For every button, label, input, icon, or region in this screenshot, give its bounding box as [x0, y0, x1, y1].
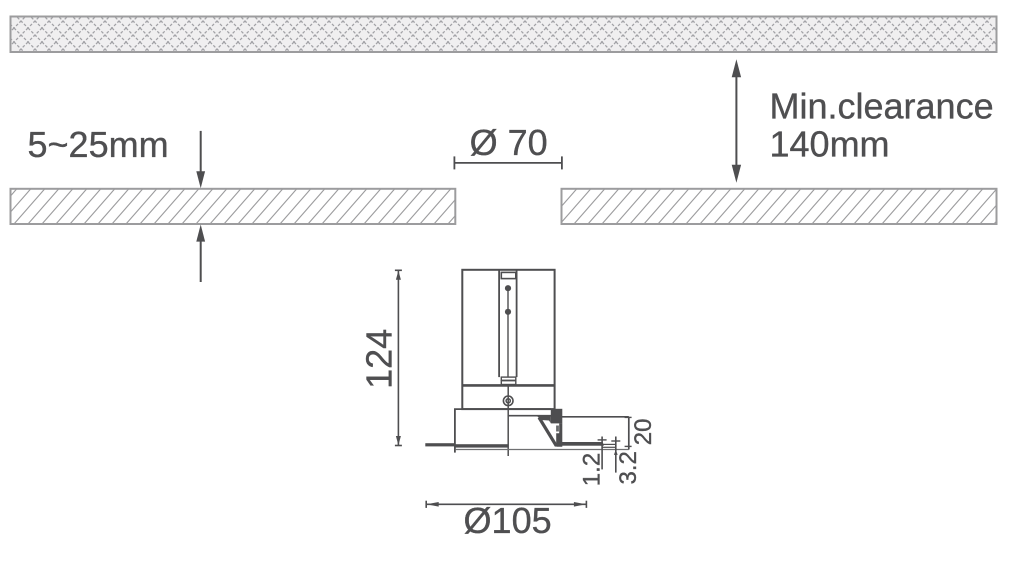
- svg-text:Ø 70: Ø 70: [470, 122, 548, 163]
- svg-text:124: 124: [359, 329, 400, 389]
- svg-text:5~25mm: 5~25mm: [28, 124, 169, 165]
- svg-text:140mm: 140mm: [770, 124, 890, 165]
- svg-text:1.2: 1.2: [579, 453, 606, 486]
- svg-text:20: 20: [630, 419, 657, 446]
- svg-text:3.2: 3.2: [615, 451, 642, 484]
- svg-text:Ø105: Ø105: [464, 500, 552, 541]
- svg-text:Min.clearance: Min.clearance: [770, 86, 994, 127]
